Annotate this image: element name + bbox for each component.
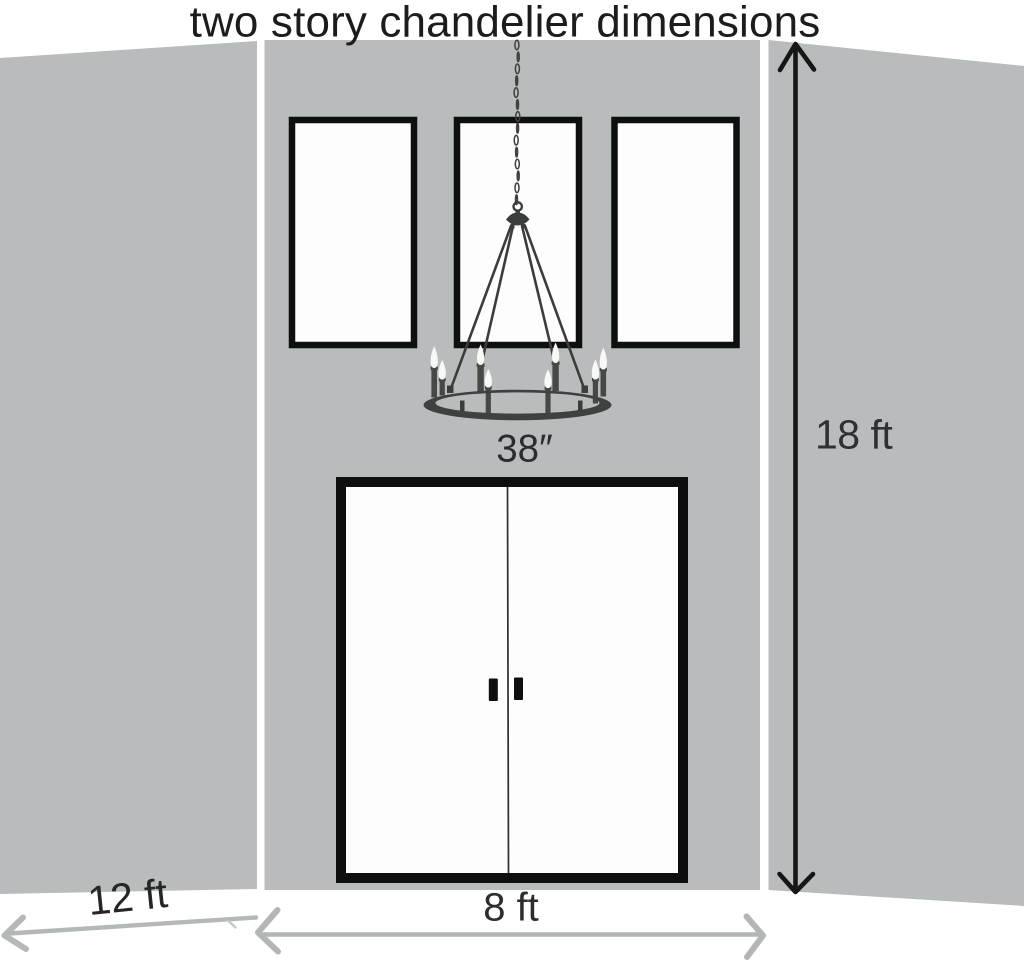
svg-text:18 ft: 18 ft: [815, 412, 893, 458]
svg-text:12 ft: 12 ft: [85, 870, 170, 924]
svg-text:two story chandelier dimension: two story chandelier dimensions: [190, 0, 821, 47]
svg-text:8 ft: 8 ft: [483, 886, 539, 930]
svg-text:38″: 38″: [496, 428, 552, 471]
